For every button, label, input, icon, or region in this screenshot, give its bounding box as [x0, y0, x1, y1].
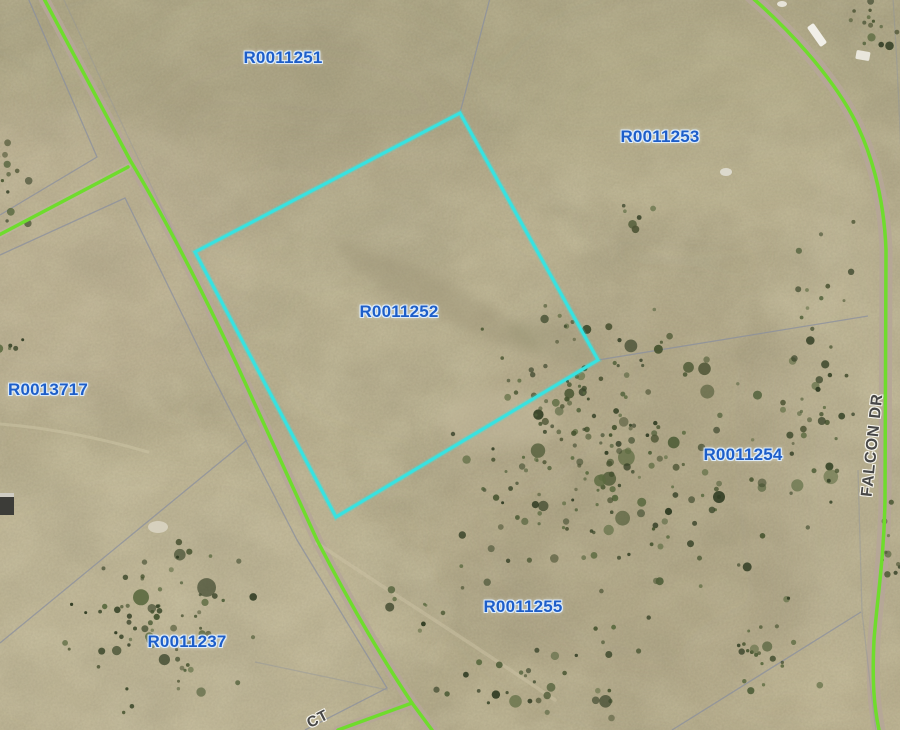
parcel-label-r0011251[interactable]: R0011251	[243, 48, 322, 68]
map-canvas[interactable]: R0011251 R0011253 R0011252 R0013717 R001…	[0, 0, 900, 730]
parcel-label-r0013717[interactable]: R0013717	[8, 380, 88, 400]
building-roof	[0, 493, 14, 497]
white-object	[720, 168, 732, 176]
aerial-imagery-layer	[0, 0, 900, 730]
white-object	[148, 521, 168, 533]
parcel-label-r0011253[interactable]: R0011253	[620, 127, 699, 147]
terrain-layer	[0, 0, 900, 730]
parcel-label-r0011255[interactable]: R0011255	[483, 597, 562, 617]
parcel-label-r0011254[interactable]: R0011254	[703, 445, 782, 465]
parcel-label-r0011237[interactable]: R0011237	[147, 632, 226, 652]
parcel-label-r0011252[interactable]: R0011252	[359, 302, 438, 322]
white-object	[777, 1, 787, 7]
